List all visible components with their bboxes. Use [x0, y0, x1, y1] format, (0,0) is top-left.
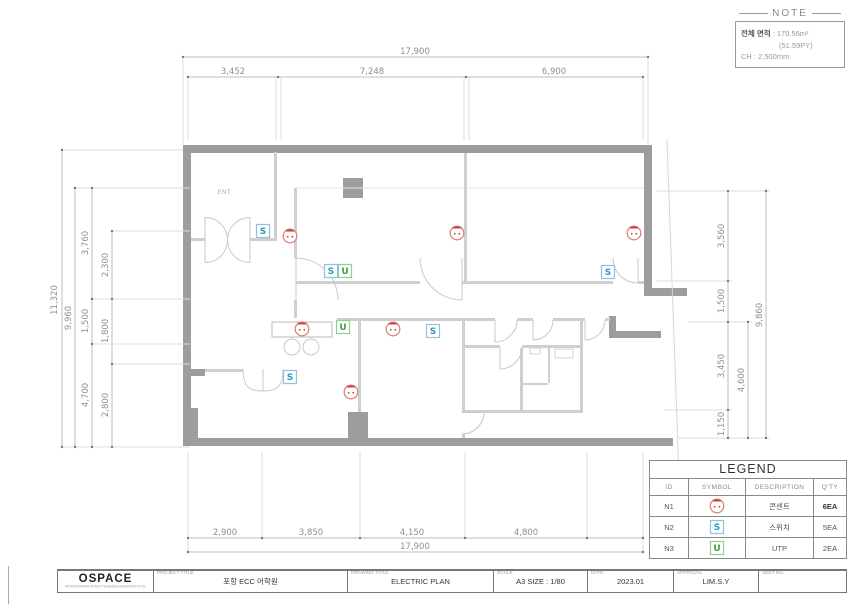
legend-header-qty: Q'TY [814, 479, 846, 495]
partition-walls [191, 152, 644, 438]
doors [205, 218, 638, 435]
note-area-label: 전체 면적 [741, 29, 771, 38]
wall-outline [183, 145, 687, 446]
furniture [272, 322, 573, 358]
outlet-symbol [344, 385, 358, 399]
title-block: OSPACE INTERIOR/ARCHITECTURE/DESIGN/INST… [57, 569, 847, 593]
legend-description: 콘센트 [746, 496, 814, 516]
scale-cell: SCALE A3 SIZE : 1/80 [493, 571, 587, 592]
project-title-label: PROJECT TITLE [157, 571, 194, 576]
switch-symbol [427, 325, 440, 338]
date-cell: DATE 2023.01 [587, 571, 673, 592]
approval-cell: APPROVAL LIM.S.Y [673, 571, 758, 592]
dim-left-sub: 2,800 [101, 393, 111, 417]
note-box: NOTE 전체 면적: 170.56m² (51.59PY) CH : 2,50… [735, 8, 845, 68]
dim-right-outer: 9,860 [755, 303, 765, 327]
company-subtitle: INTERIOR/ARCHITECTURE/DESIGN/INSTITUTE [65, 585, 146, 589]
legend-title: LEGEND [650, 461, 846, 479]
dim-bottom-seg: 4,800 [514, 528, 538, 538]
dim-left-seg: 4,700 [81, 383, 91, 407]
electric-symbols [257, 225, 641, 399]
switch-symbol [257, 225, 270, 238]
legend-id: N1 [650, 496, 689, 516]
drawing-title-label: DRAWING TITLE [351, 571, 388, 576]
outlet-symbol [386, 322, 400, 336]
approval-label: APPROVAL [677, 571, 703, 576]
legend-row-utp: N3 UTP 2EA [650, 538, 846, 558]
note-ch-line: CH : 2,500mm [741, 52, 839, 61]
company-logo-cell: OSPACE INTERIOR/ARCHITECTURE/DESIGN/INST… [58, 571, 153, 592]
drawing-sheet: S U [0, 0, 850, 604]
legend-qty: 5EA [814, 517, 846, 537]
dim-left-sub: 2,300 [101, 253, 111, 277]
outer-walls [183, 140, 687, 478]
dim-top-seg: 7,248 [360, 67, 384, 77]
legend-description: 스위치 [746, 517, 814, 537]
dim-left-outer: 11,320 [50, 285, 60, 315]
legend-header-symbol: SYMBOL [689, 479, 746, 495]
legend-qty: 6EA [814, 496, 846, 516]
legend-table: LEGEND ID SYMBOL DESCRIPTION Q'TY N1 콘센트… [649, 460, 847, 559]
note-area-value: : 170.56m² [773, 29, 809, 38]
dim-bottom-overall: 17,900 [400, 542, 430, 552]
legend-row-switch: N2 스위치 5EA [650, 517, 846, 538]
legend-header-description: DESCRIPTION [746, 479, 814, 495]
room2-door [613, 258, 638, 283]
dim-left-sub: 1,800 [101, 319, 111, 343]
sheet-edge-line [8, 566, 9, 604]
date-label: DATE [591, 571, 603, 576]
dim-bottom-seg: 2,900 [213, 528, 237, 538]
room1-door [420, 258, 462, 300]
dim-top-seg: 3,452 [221, 67, 245, 77]
legend-description: UTP [746, 538, 814, 558]
dim-left-seg: 3,760 [81, 231, 91, 255]
legend-id: N2 [650, 517, 689, 537]
utp-box-icon [689, 538, 746, 558]
dim-top-overall: 17,900 [400, 47, 430, 57]
dim-right-mid: 4,600 [737, 368, 747, 392]
company-name: OSPACE [79, 574, 133, 584]
entrance-double-door [205, 218, 250, 263]
chair [303, 339, 319, 355]
dim-left-inner: 9,960 [64, 306, 74, 330]
bath-doors [462, 320, 605, 434]
outlet-symbol [627, 226, 641, 240]
note-area-py: (51.59PY) [741, 41, 839, 50]
note-body: 전체 면적: 170.56m² (51.59PY) CH : 2,500mm [735, 21, 845, 68]
note-area-line: 전체 면적: 170.56m² [741, 28, 839, 39]
outlet-symbol [450, 226, 464, 240]
interior-walls [191, 152, 644, 438]
outlet-symbol [283, 229, 297, 243]
switch-symbol [602, 266, 615, 279]
dim-right-seg: 1,500 [717, 289, 727, 313]
legend-qty: 2EA [814, 538, 846, 558]
outlet-circle-icon [689, 496, 746, 516]
dim-right-seg: 1,150 [717, 412, 727, 436]
legend-row-outlet: N1 콘센트 6EA [650, 496, 846, 517]
switch-symbol [325, 265, 338, 278]
switch-box-icon [689, 517, 746, 537]
dim-top-seg: 6,900 [542, 67, 566, 77]
note-title: NOTE [735, 8, 845, 19]
dim-right-seg: 3,450 [717, 354, 727, 378]
bath-fixture [555, 349, 573, 358]
outlet-symbol [295, 322, 309, 336]
switch-symbol [284, 371, 297, 384]
legend-id: N3 [650, 538, 689, 558]
chair [284, 339, 300, 355]
bath-fixture [530, 348, 540, 354]
utp-symbol [339, 265, 352, 278]
utp-symbol [337, 321, 350, 334]
scale-label: SCALE [497, 571, 513, 576]
sheet-no-cell: SEET NO. [758, 571, 846, 592]
dim-bottom-seg: 4,150 [400, 528, 424, 538]
legend-header-id: ID [650, 479, 689, 495]
sheet-no-label: SEET NO. [762, 571, 784, 576]
office-swing-door [243, 369, 283, 391]
dim-right-seg: 3,560 [717, 224, 727, 248]
drawing-title-cell: DRAWING TITLE ELECTRIC PLAN [347, 571, 493, 592]
dim-left-seg: 1,500 [81, 309, 91, 333]
entrance-label: ENT [218, 188, 231, 196]
legend-header-row: ID SYMBOL DESCRIPTION Q'TY [650, 479, 846, 496]
dim-bottom-seg: 3,850 [299, 528, 323, 538]
project-title-cell: PROJECT TITLE 포항 ECC 어학원 [153, 571, 347, 592]
